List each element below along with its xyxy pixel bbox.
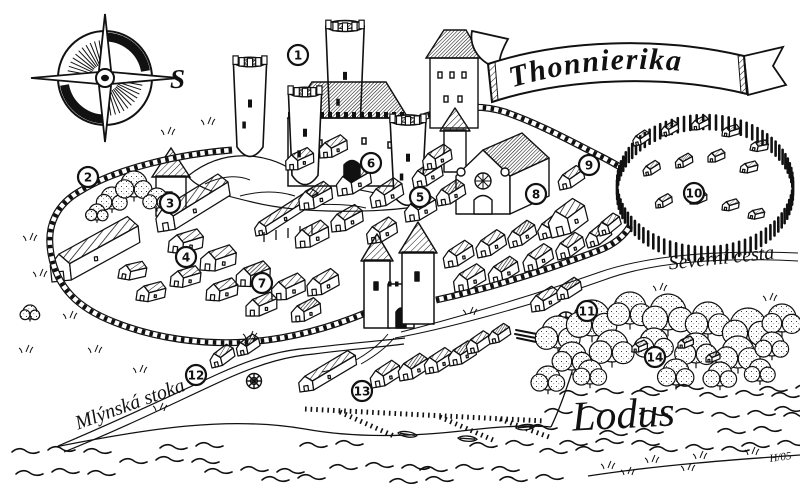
grass-tuft — [693, 451, 707, 459]
marker-number: 8 — [532, 187, 540, 201]
map-label-river-lodus: Lodus — [570, 389, 676, 440]
town-map: S Thonnierika Severní cestaMlýnská stoka… — [0, 0, 800, 484]
svg-text:Thonnierika: Thonnierika — [505, 43, 684, 94]
marker-number: 14 — [647, 350, 664, 364]
grass-tuft — [601, 461, 615, 469]
grass-tuft — [645, 455, 659, 463]
boat — [458, 435, 477, 442]
house — [271, 273, 305, 300]
map-marker-5: 5 — [410, 187, 430, 207]
compass-needle-e — [105, 72, 179, 84]
warehouse-long — [295, 350, 359, 392]
map-marker-10: 10 — [684, 183, 704, 203]
grass-tuft — [463, 307, 477, 315]
house — [473, 228, 508, 258]
map-marker-2: 2 — [78, 167, 98, 187]
map-marker-6: 6 — [361, 153, 381, 173]
river-wave — [120, 457, 228, 464]
marker-number: 13 — [354, 384, 371, 398]
river-wave — [470, 441, 542, 448]
marker-number: 6 — [367, 156, 375, 170]
map-canvas: S Thonnierika Severní cestaMlýnská stoka… — [0, 0, 800, 484]
marker-number: 5 — [416, 190, 424, 204]
grass-tuft — [133, 365, 147, 373]
map-marker-9: 9 — [579, 155, 599, 175]
river-wave — [12, 447, 120, 454]
river-wave — [712, 411, 800, 418]
river-wave — [500, 475, 572, 482]
river-wave — [205, 467, 313, 474]
mill-building — [207, 343, 236, 368]
grass-tuft — [23, 233, 37, 241]
water-wheel — [247, 374, 262, 389]
map-marker-4: 4 — [176, 247, 196, 267]
grass-tuft — [19, 345, 33, 353]
grass-tuft — [161, 127, 175, 135]
compass-hub-dot — [101, 75, 109, 81]
banner-right-tail — [744, 47, 786, 95]
marker-number: 4 — [182, 250, 190, 264]
title-banner: Thonnierika — [471, 31, 786, 102]
river-wave — [718, 427, 790, 434]
map-marker-12: 12 — [186, 365, 206, 385]
compass-needle-w — [31, 72, 105, 84]
compass-rose: S — [31, 14, 185, 142]
river-wave — [760, 385, 800, 392]
map-marker-3: 3 — [160, 193, 180, 213]
river-wave — [16, 469, 124, 476]
harbor-house — [486, 322, 512, 344]
tree — [762, 304, 800, 337]
marker-number: 11 — [579, 304, 596, 318]
map-marker-14: 14 — [645, 347, 665, 367]
house — [365, 216, 399, 244]
river-wave — [700, 391, 800, 398]
house — [441, 239, 475, 268]
map-marker-1: 1 — [288, 45, 308, 65]
river-wave — [300, 441, 372, 448]
piers — [305, 409, 549, 440]
river-wave — [742, 441, 800, 448]
house — [294, 220, 329, 248]
house — [290, 297, 321, 322]
grass-tuft — [88, 345, 102, 353]
map-marker-8: 8 — [526, 184, 546, 204]
river-wave — [262, 475, 334, 482]
stream-mill — [529, 285, 561, 312]
river-wave — [540, 447, 612, 454]
marker-number: 12 — [188, 368, 205, 382]
grass-tuft — [33, 269, 47, 277]
river-wave — [775, 407, 800, 412]
river-wave — [160, 443, 232, 450]
compass-label: S — [170, 64, 185, 94]
stream-mill — [555, 276, 583, 300]
marker-number: 10 — [686, 186, 703, 200]
river-wave — [420, 465, 528, 472]
house — [136, 278, 167, 303]
marker-number: 3 — [166, 196, 174, 210]
map-marker-11: 11 — [577, 301, 597, 321]
grass-tuft — [63, 311, 77, 319]
grass-tuft — [763, 293, 777, 301]
house — [246, 292, 277, 316]
map-marker-7: 7 — [252, 273, 272, 293]
house — [118, 258, 148, 283]
map-title: Thonnierika — [505, 43, 684, 94]
house — [206, 276, 238, 302]
castle-tower — [233, 56, 267, 157]
house — [305, 268, 340, 296]
grass-tuft — [201, 117, 215, 125]
house — [595, 212, 623, 236]
house — [504, 219, 538, 248]
map-marker-13: 13 — [352, 381, 372, 401]
river-wave — [390, 477, 462, 484]
warehouse — [368, 359, 402, 388]
artist-signature: H/05 — [768, 450, 793, 465]
tree — [20, 305, 40, 321]
house — [200, 243, 237, 273]
marker-number: 1 — [294, 48, 302, 62]
marker-number: 7 — [258, 276, 266, 290]
marker-number: 2 — [84, 170, 92, 184]
marker-number: 9 — [585, 158, 593, 172]
grass-tuft — [653, 283, 667, 291]
